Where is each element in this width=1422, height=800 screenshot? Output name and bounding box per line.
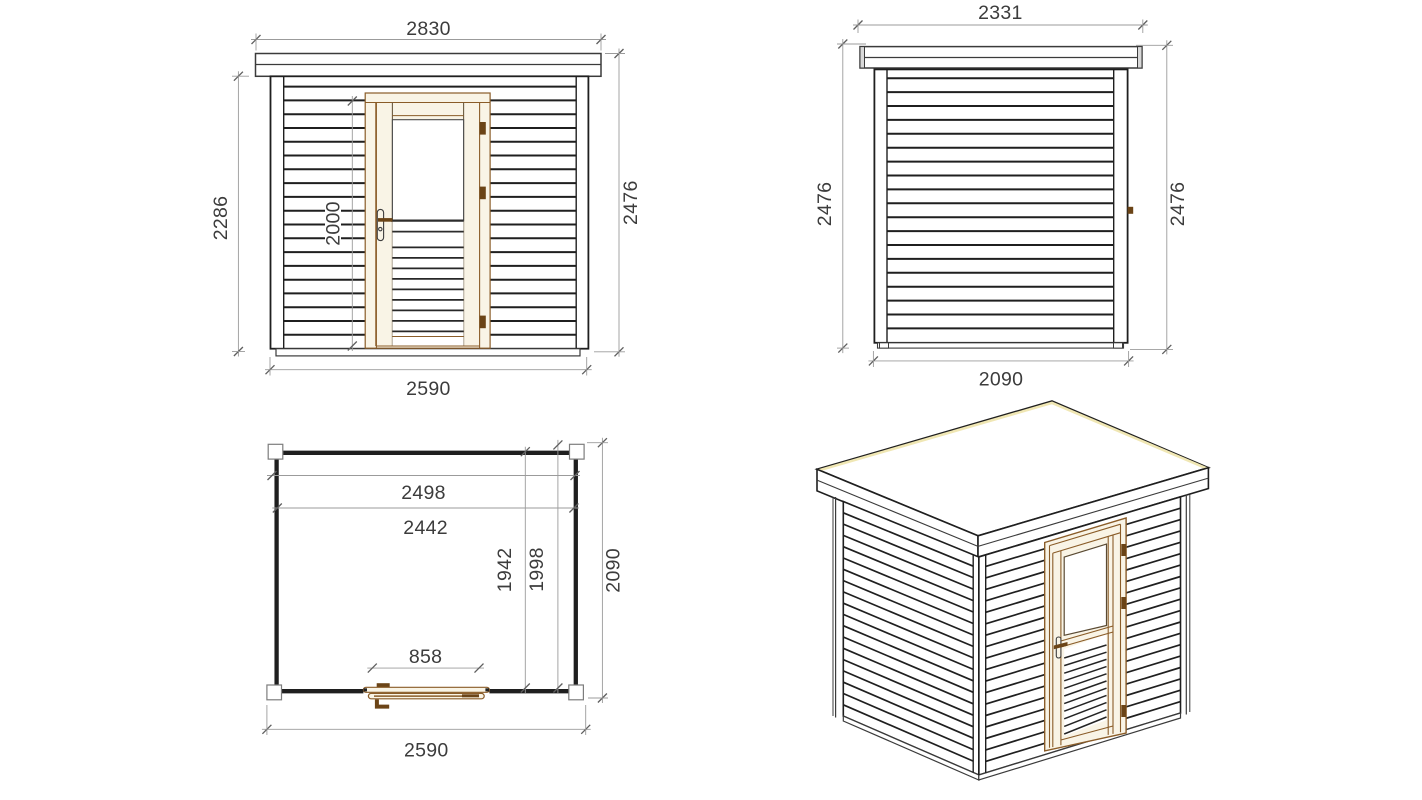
svg-text:2442: 2442 <box>403 517 448 539</box>
svg-text:1942: 1942 <box>494 548 516 593</box>
svg-text:2476: 2476 <box>1167 182 1189 227</box>
svg-text:2286: 2286 <box>210 196 232 241</box>
svg-text:2331: 2331 <box>978 2 1023 24</box>
svg-text:2498: 2498 <box>401 482 446 504</box>
svg-text:2830: 2830 <box>406 18 451 40</box>
svg-text:2476: 2476 <box>814 182 836 227</box>
svg-text:2590: 2590 <box>406 378 451 400</box>
svg-text:2090: 2090 <box>979 369 1024 391</box>
svg-text:2476: 2476 <box>620 180 642 225</box>
svg-text:2090: 2090 <box>603 548 625 593</box>
svg-text:2000: 2000 <box>323 201 345 246</box>
svg-text:858: 858 <box>409 646 442 668</box>
svg-text:2590: 2590 <box>404 740 449 762</box>
svg-text:1998: 1998 <box>526 547 548 592</box>
